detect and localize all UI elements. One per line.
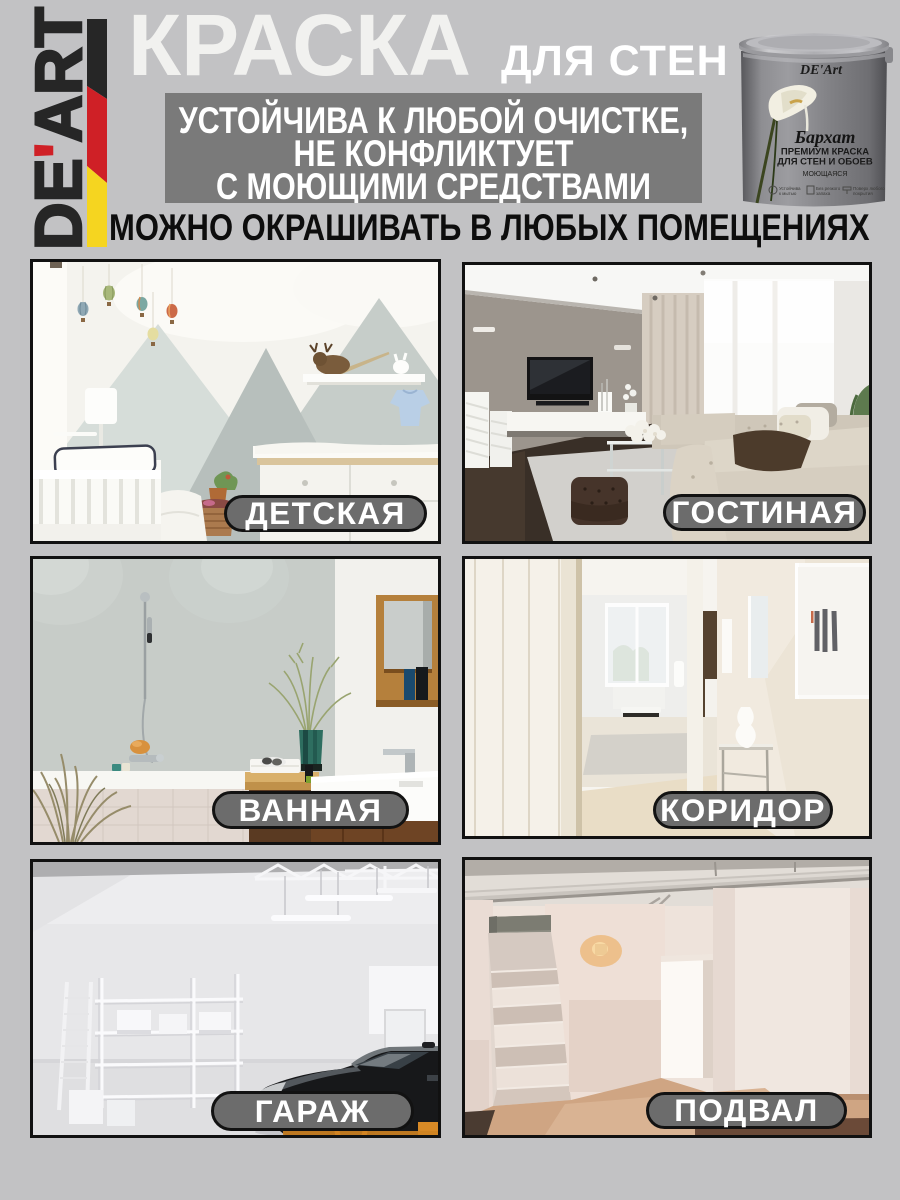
svg-text:запаха: запаха <box>816 191 831 196</box>
svg-text:покрытия: покрытия <box>853 191 873 196</box>
svg-text:DE'Art: DE'Art <box>799 63 843 78</box>
svg-text:Бархат: Бархат <box>794 127 856 147</box>
svg-text:ДЛЯ СТЕН И ОБОЕВ: ДЛЯ СТЕН И ОБОЕВ <box>777 157 873 168</box>
svg-text:к мытью: к мытью <box>779 191 797 196</box>
svg-text:DE'ART: DE'ART <box>21 7 95 250</box>
svg-text:МОЮЩАЯСЯ: МОЮЩАЯСЯ <box>803 171 848 178</box>
